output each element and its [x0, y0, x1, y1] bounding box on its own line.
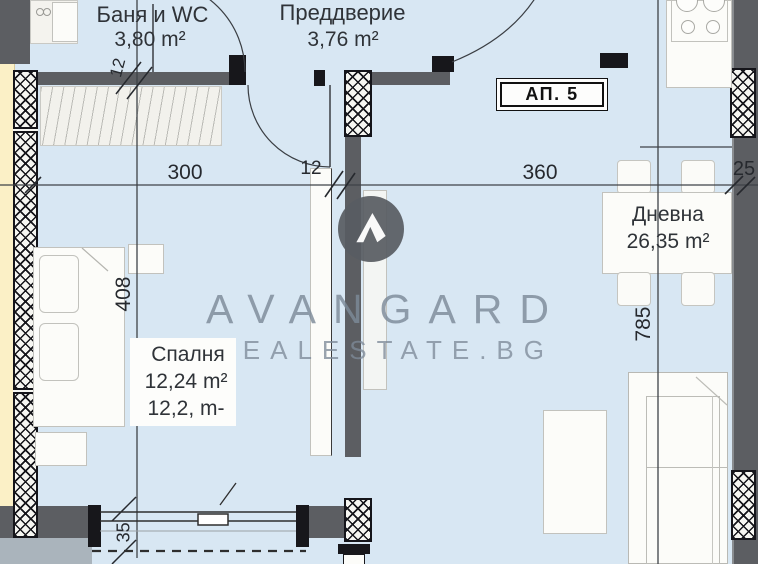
- dim-living-width: 360: [505, 161, 575, 185]
- bedroom-name: Спалня: [140, 343, 236, 367]
- door-jamb: [432, 56, 454, 72]
- dim-window: 35: [114, 512, 135, 552]
- washbasin-icon: [52, 2, 78, 42]
- wall-left-top: [0, 0, 30, 64]
- nightstand: [35, 432, 87, 466]
- bathroom-area: 3,80 m²: [95, 28, 205, 52]
- balcony-door-jamb: [338, 544, 370, 554]
- insulation-right-top: [730, 68, 756, 138]
- avangard-logo-icon: [338, 196, 404, 262]
- living-area: 26,35 m²: [608, 230, 728, 254]
- apartment-badge-label: АП. 5: [500, 82, 604, 107]
- door-jamb: [229, 55, 246, 85]
- bedroom-area: 12,24 m²: [130, 370, 242, 394]
- wall-bottom-left-outer: [0, 538, 92, 564]
- door-stop: [600, 53, 628, 68]
- wall-hall-right: [370, 72, 450, 85]
- balcony-door-stub: [343, 554, 365, 564]
- apartment-badge: АП. 5: [496, 78, 608, 111]
- door-jamb: [314, 70, 325, 86]
- insulation-mid-column: [344, 70, 372, 137]
- dim-bedroom-width: 300: [150, 161, 220, 185]
- sofa-seat: [646, 396, 720, 564]
- sofa-divider: [712, 396, 713, 564]
- faucet-icon: [43, 8, 51, 16]
- chair: [681, 160, 715, 194]
- dim-right-wall: 25: [726, 158, 758, 181]
- coffee-table: [543, 410, 607, 534]
- window-jamb: [296, 505, 309, 547]
- insulation-left-joint-1: [13, 127, 38, 133]
- chair: [617, 160, 651, 194]
- wall-bottom-mid: [306, 506, 346, 538]
- hallway-name: Преддверие: [255, 0, 430, 25]
- wall-bathroom-bottom: [30, 72, 238, 85]
- bedroom-area-overlay: 12,2, m-: [130, 397, 242, 421]
- wardrobe-top: [40, 86, 222, 146]
- dim-living-height: 785: [632, 296, 656, 352]
- stove-burner-icon: [681, 20, 695, 34]
- insulation-right-bottom: [731, 470, 756, 540]
- sofa-divider: [646, 467, 728, 468]
- hallway-area: 3,76 m²: [288, 28, 398, 52]
- floor-plan: AVANGARD REALESTATE.BG АП. 5 Баня и WC 3…: [0, 0, 758, 564]
- living-name: Дневна: [620, 203, 716, 227]
- dim-bedroom-height: 408: [112, 266, 136, 322]
- dim-mid-wall: 12: [296, 158, 326, 180]
- window-jamb: [88, 505, 101, 547]
- stove-burner-icon: [706, 20, 720, 34]
- insulation-bottom-mid: [344, 498, 372, 542]
- bathroom-name: Баня и WC: [85, 2, 220, 27]
